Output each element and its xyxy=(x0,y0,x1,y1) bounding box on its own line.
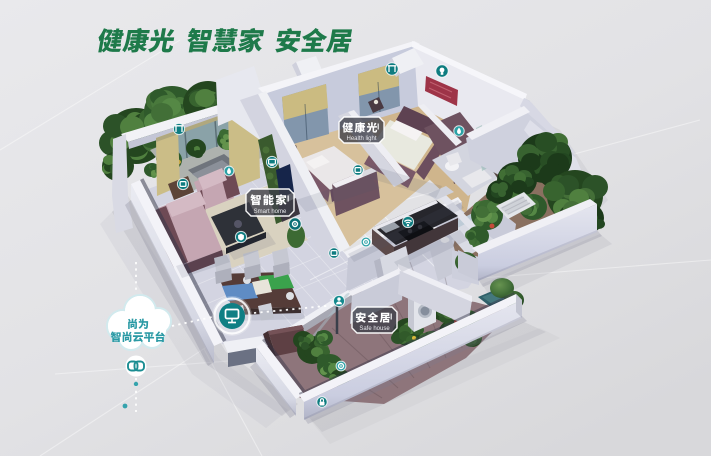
svg-text:Safe house: Safe house xyxy=(359,326,390,332)
svg-text:Smart home: Smart home xyxy=(254,209,287,215)
svg-text:Health light: Health light xyxy=(346,136,376,142)
